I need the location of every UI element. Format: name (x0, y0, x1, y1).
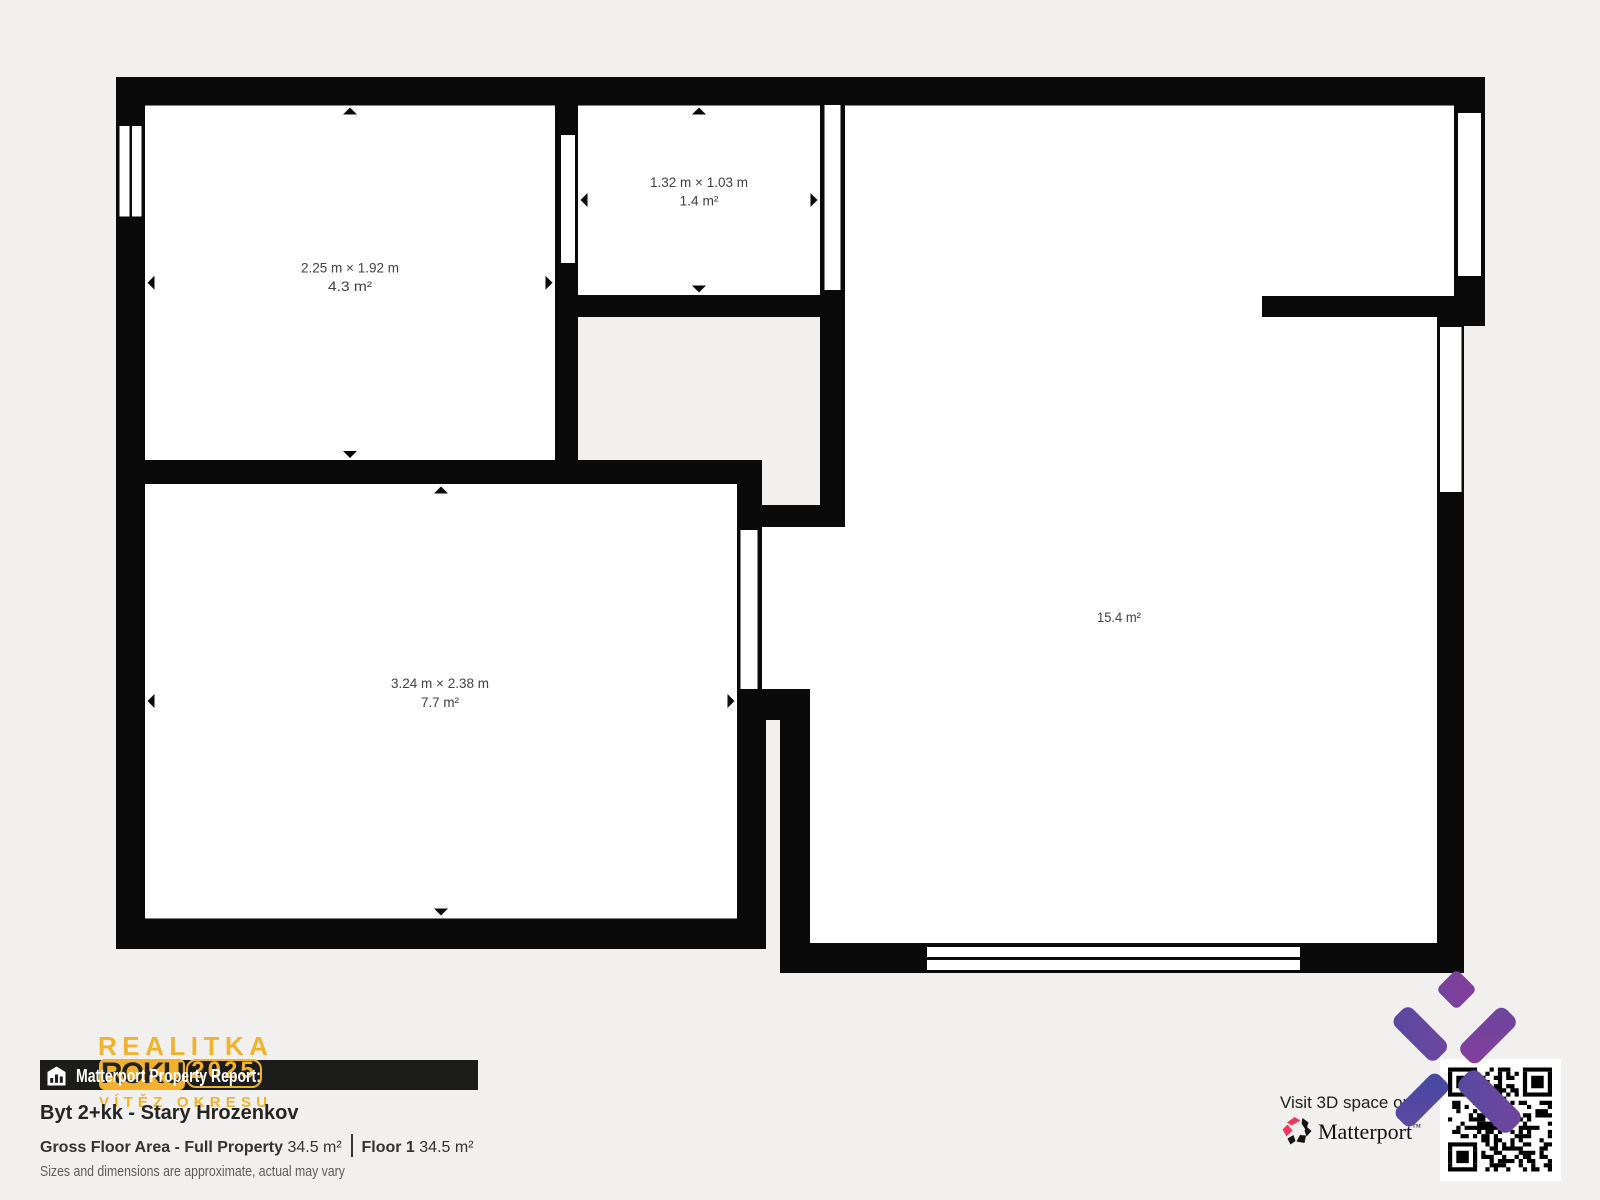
svg-text:15.4 m²: 15.4 m² (1097, 609, 1141, 625)
svg-text:3.24 m × 2.38 m: 3.24 m × 2.38 m (391, 675, 489, 691)
svg-text:1.32 m × 1.03 m: 1.32 m × 1.03 m (650, 174, 748, 190)
svg-text:4.3 m²: 4.3 m² (328, 278, 372, 294)
svg-text:1.4 m²: 1.4 m² (680, 193, 719, 209)
svg-text:7.7 m²: 7.7 m² (421, 694, 459, 710)
svg-text:2.25 m × 1.92 m: 2.25 m × 1.92 m (301, 260, 399, 276)
